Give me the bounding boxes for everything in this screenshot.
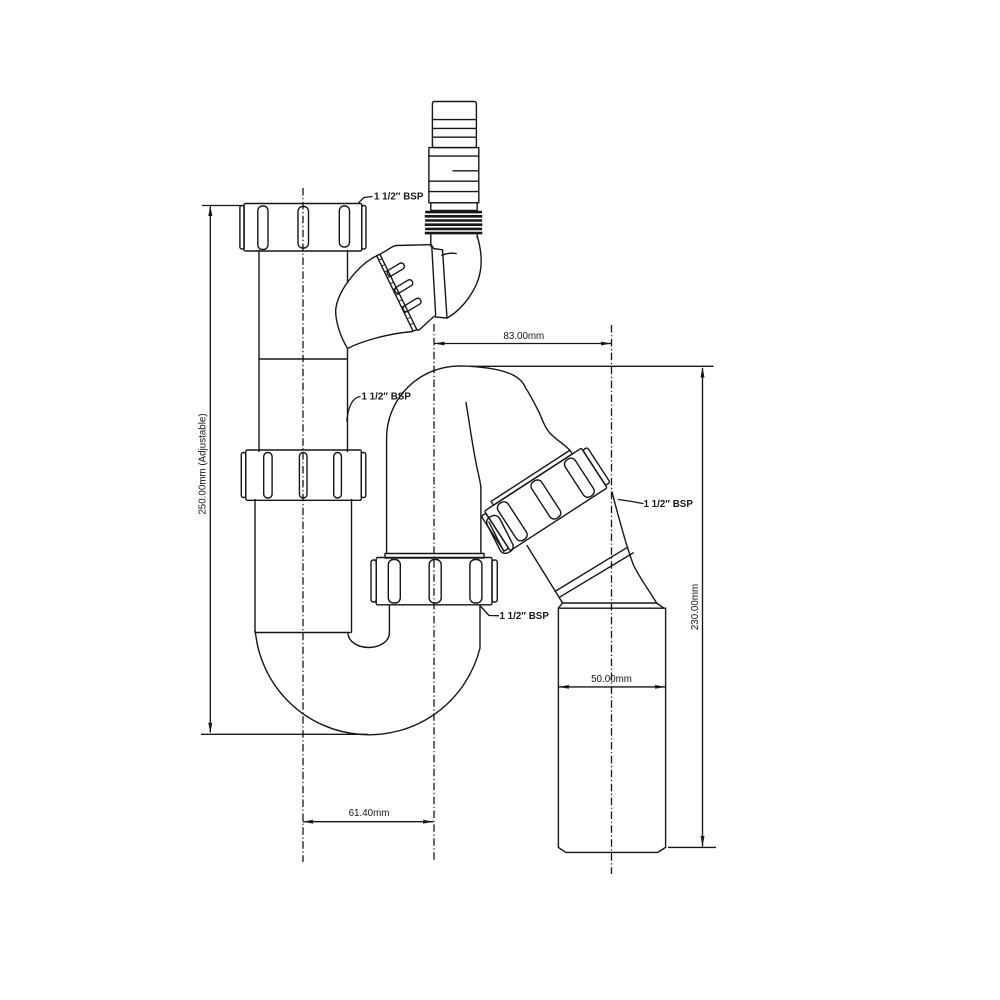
svg-text:1 1/2″ BSP: 1 1/2″ BSP (644, 499, 694, 510)
svg-text:230.00mm: 230.00mm (690, 584, 701, 630)
svg-text:61.40mm: 61.40mm (349, 808, 390, 819)
svg-text:83.00mm: 83.00mm (503, 331, 544, 342)
svg-text:1 1/2″ BSP: 1 1/2″ BSP (500, 611, 550, 622)
svg-text:250.00mm (Adjustable): 250.00mm (Adjustable) (198, 413, 209, 514)
svg-text:1 1/2″ BSP: 1 1/2″ BSP (362, 392, 412, 403)
svg-text:50.00mm: 50.00mm (591, 674, 632, 685)
svg-text:1 1/2″ BSP: 1 1/2″ BSP (374, 192, 424, 203)
